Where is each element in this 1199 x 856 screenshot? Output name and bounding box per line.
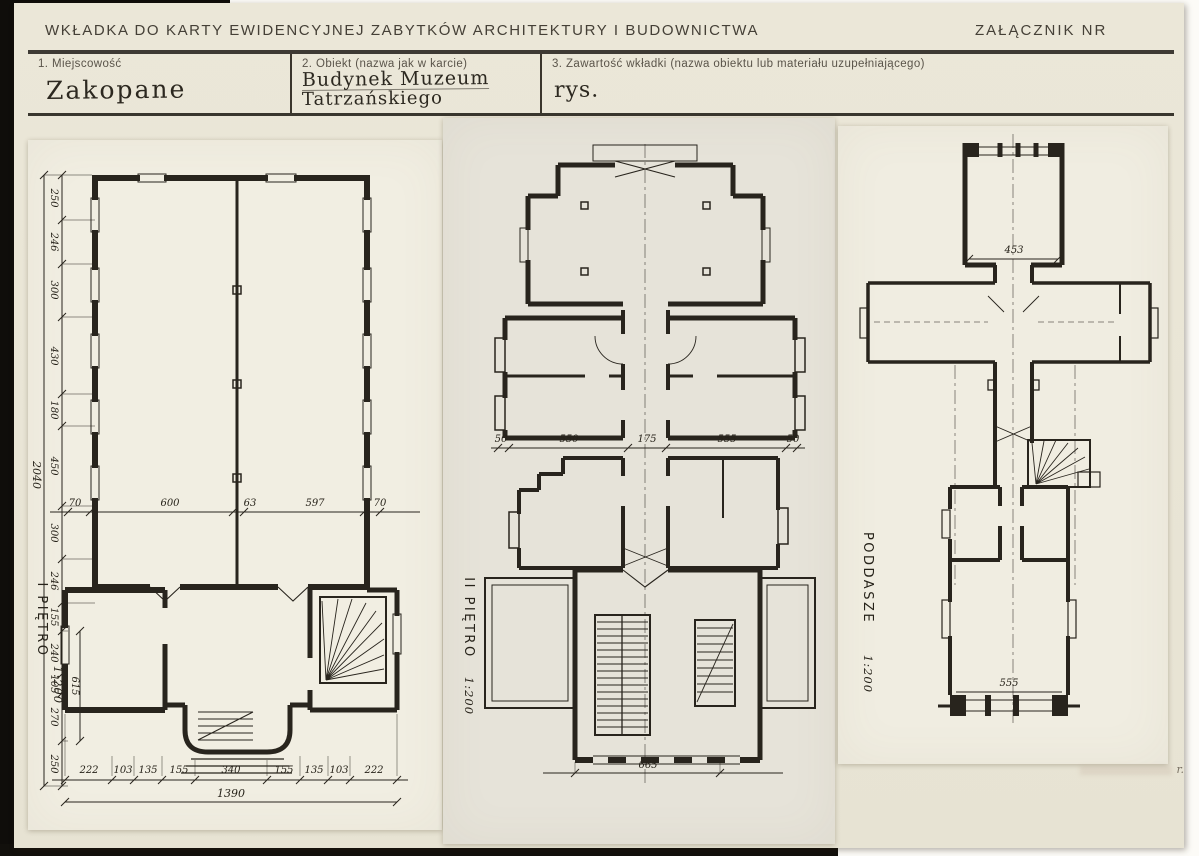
record-card: WKŁADKA DO KARTY EWIDENCYJNEJ ZABYTKÓW A… (14, 3, 1184, 848)
field-miejscowosc-value: Zakopane (46, 74, 282, 105)
dim-label: 50 (787, 434, 800, 445)
plan-sheet-attic: 453 (838, 126, 1168, 764)
dim-label: 180 (48, 400, 59, 420)
dim-label: 430 (48, 345, 59, 366)
stamp-smudge (1080, 766, 1172, 775)
dim-label: 450 (48, 455, 59, 476)
form-row: 1. Miejscowość Zakopane 2. Obiekt (nazwa… (28, 54, 1174, 113)
dim-label: 453 (1003, 245, 1023, 256)
roof-edge-lines (955, 365, 1075, 585)
field-obiekt: 2. Obiekt (nazwa jak w karcie) Budynek M… (290, 54, 540, 113)
plan-title-attic: PODDASZE 1:200 (860, 532, 875, 693)
field-obiekt-value-line2: Tatrzańskiego (302, 89, 532, 109)
plan-name-label: PODDASZE (860, 532, 875, 624)
dim-chain-bottom: 222 103 135 155 340 155 135 103 222 1390 (52, 714, 408, 806)
plan-sheet-second-floor: 50 550 175 555 50 (443, 118, 835, 844)
dim-label: 246 (48, 231, 59, 252)
dim-label: 250 (48, 753, 59, 774)
dim-label: 135 (138, 765, 157, 776)
plan-sheet-first-floor: 250 246 300 430 180 450 300 246 155 240 … (28, 140, 442, 830)
dim-label: 103 (329, 765, 348, 776)
dim-label: 555 (999, 678, 1018, 689)
lower-rooms (61, 587, 401, 773)
dim-label: 175 (637, 434, 656, 445)
lower-band-rooms (509, 458, 788, 568)
dim-label: 222 (363, 765, 383, 776)
plan-scale-label: 1:200 (51, 666, 65, 704)
plan-name-label: I PIĘTRO (34, 582, 49, 657)
side-wings (860, 283, 1158, 362)
faint-stamp: r. (1034, 763, 1184, 776)
dim-label: 555 (717, 434, 736, 445)
bottom-block-stairhall (485, 570, 815, 764)
plan-scale-label: 1:200 (861, 655, 875, 693)
dim-label: 300 (48, 523, 59, 543)
field-zawartosc-label: 3. Zawartość wkładki (nazwa obiektu lub … (552, 58, 1166, 70)
plan-title-second-floor: II PIĘTRO 1:200 (461, 577, 476, 715)
dim-label: 340 (221, 765, 241, 776)
hall-walls (91, 174, 371, 601)
dim-total-label: 1390 (217, 787, 245, 800)
floor-plan-first-floor: 250 246 300 430 180 450 300 246 155 240 … (28, 140, 442, 830)
floor-plan-attic: 453 (838, 126, 1168, 764)
form-bottom-rule (28, 113, 1174, 116)
dim-label: 70 (69, 498, 82, 509)
dim-label: 63 (244, 498, 257, 509)
dim-label: 550 (559, 434, 579, 445)
field-miejscowosc: 1. Miejscowość Zakopane (28, 54, 290, 113)
dim-label: 250 (48, 187, 59, 208)
floor-plan-second-floor: 50 550 175 555 50 (443, 118, 835, 844)
dim-label: 155 (169, 765, 188, 776)
dim-subtotal-label: 615 (69, 676, 80, 695)
dim-label: 155 (274, 765, 293, 776)
middle-band-rooms (495, 310, 805, 438)
card-title: WKŁADKA DO KARTY EWIDENCYJNEJ ZABYTKÓW A… (45, 22, 759, 39)
dim-label: 300 (48, 280, 59, 300)
dim-total-label: 665 (638, 760, 657, 771)
dim-label: 270 (48, 706, 59, 727)
dim-label: 70 (374, 498, 387, 509)
field-zawartosc-value: rys. (554, 72, 1166, 103)
stamp-text: r. (1176, 763, 1184, 776)
dim-label: 50 (495, 434, 508, 445)
attic-stair (1028, 440, 1100, 487)
dim-label: 600 (160, 498, 180, 509)
dim-label: 222 (78, 765, 98, 776)
field-miejscowosc-label: 1. Miejscowość (38, 58, 282, 70)
bottom-room: 555 (938, 560, 1080, 716)
small-rooms (942, 487, 1068, 560)
top-room-walls: 453 (965, 143, 1062, 265)
dim-label: 135 (304, 765, 323, 776)
corridor-walls (988, 265, 1039, 487)
dim-label: 597 (305, 498, 325, 509)
plan-name-label: II PIĘTRO (461, 577, 476, 658)
dim-total-label: 2040 (30, 460, 43, 489)
attachment-label: ZAŁĄCZNIK NR (975, 22, 1107, 39)
plan-scale-label: 1:200 (462, 677, 476, 715)
field-zawartosc: 3. Zawartość wkładki (nazwa obiektu lub … (540, 54, 1174, 113)
dim-label: 103 (113, 765, 132, 776)
